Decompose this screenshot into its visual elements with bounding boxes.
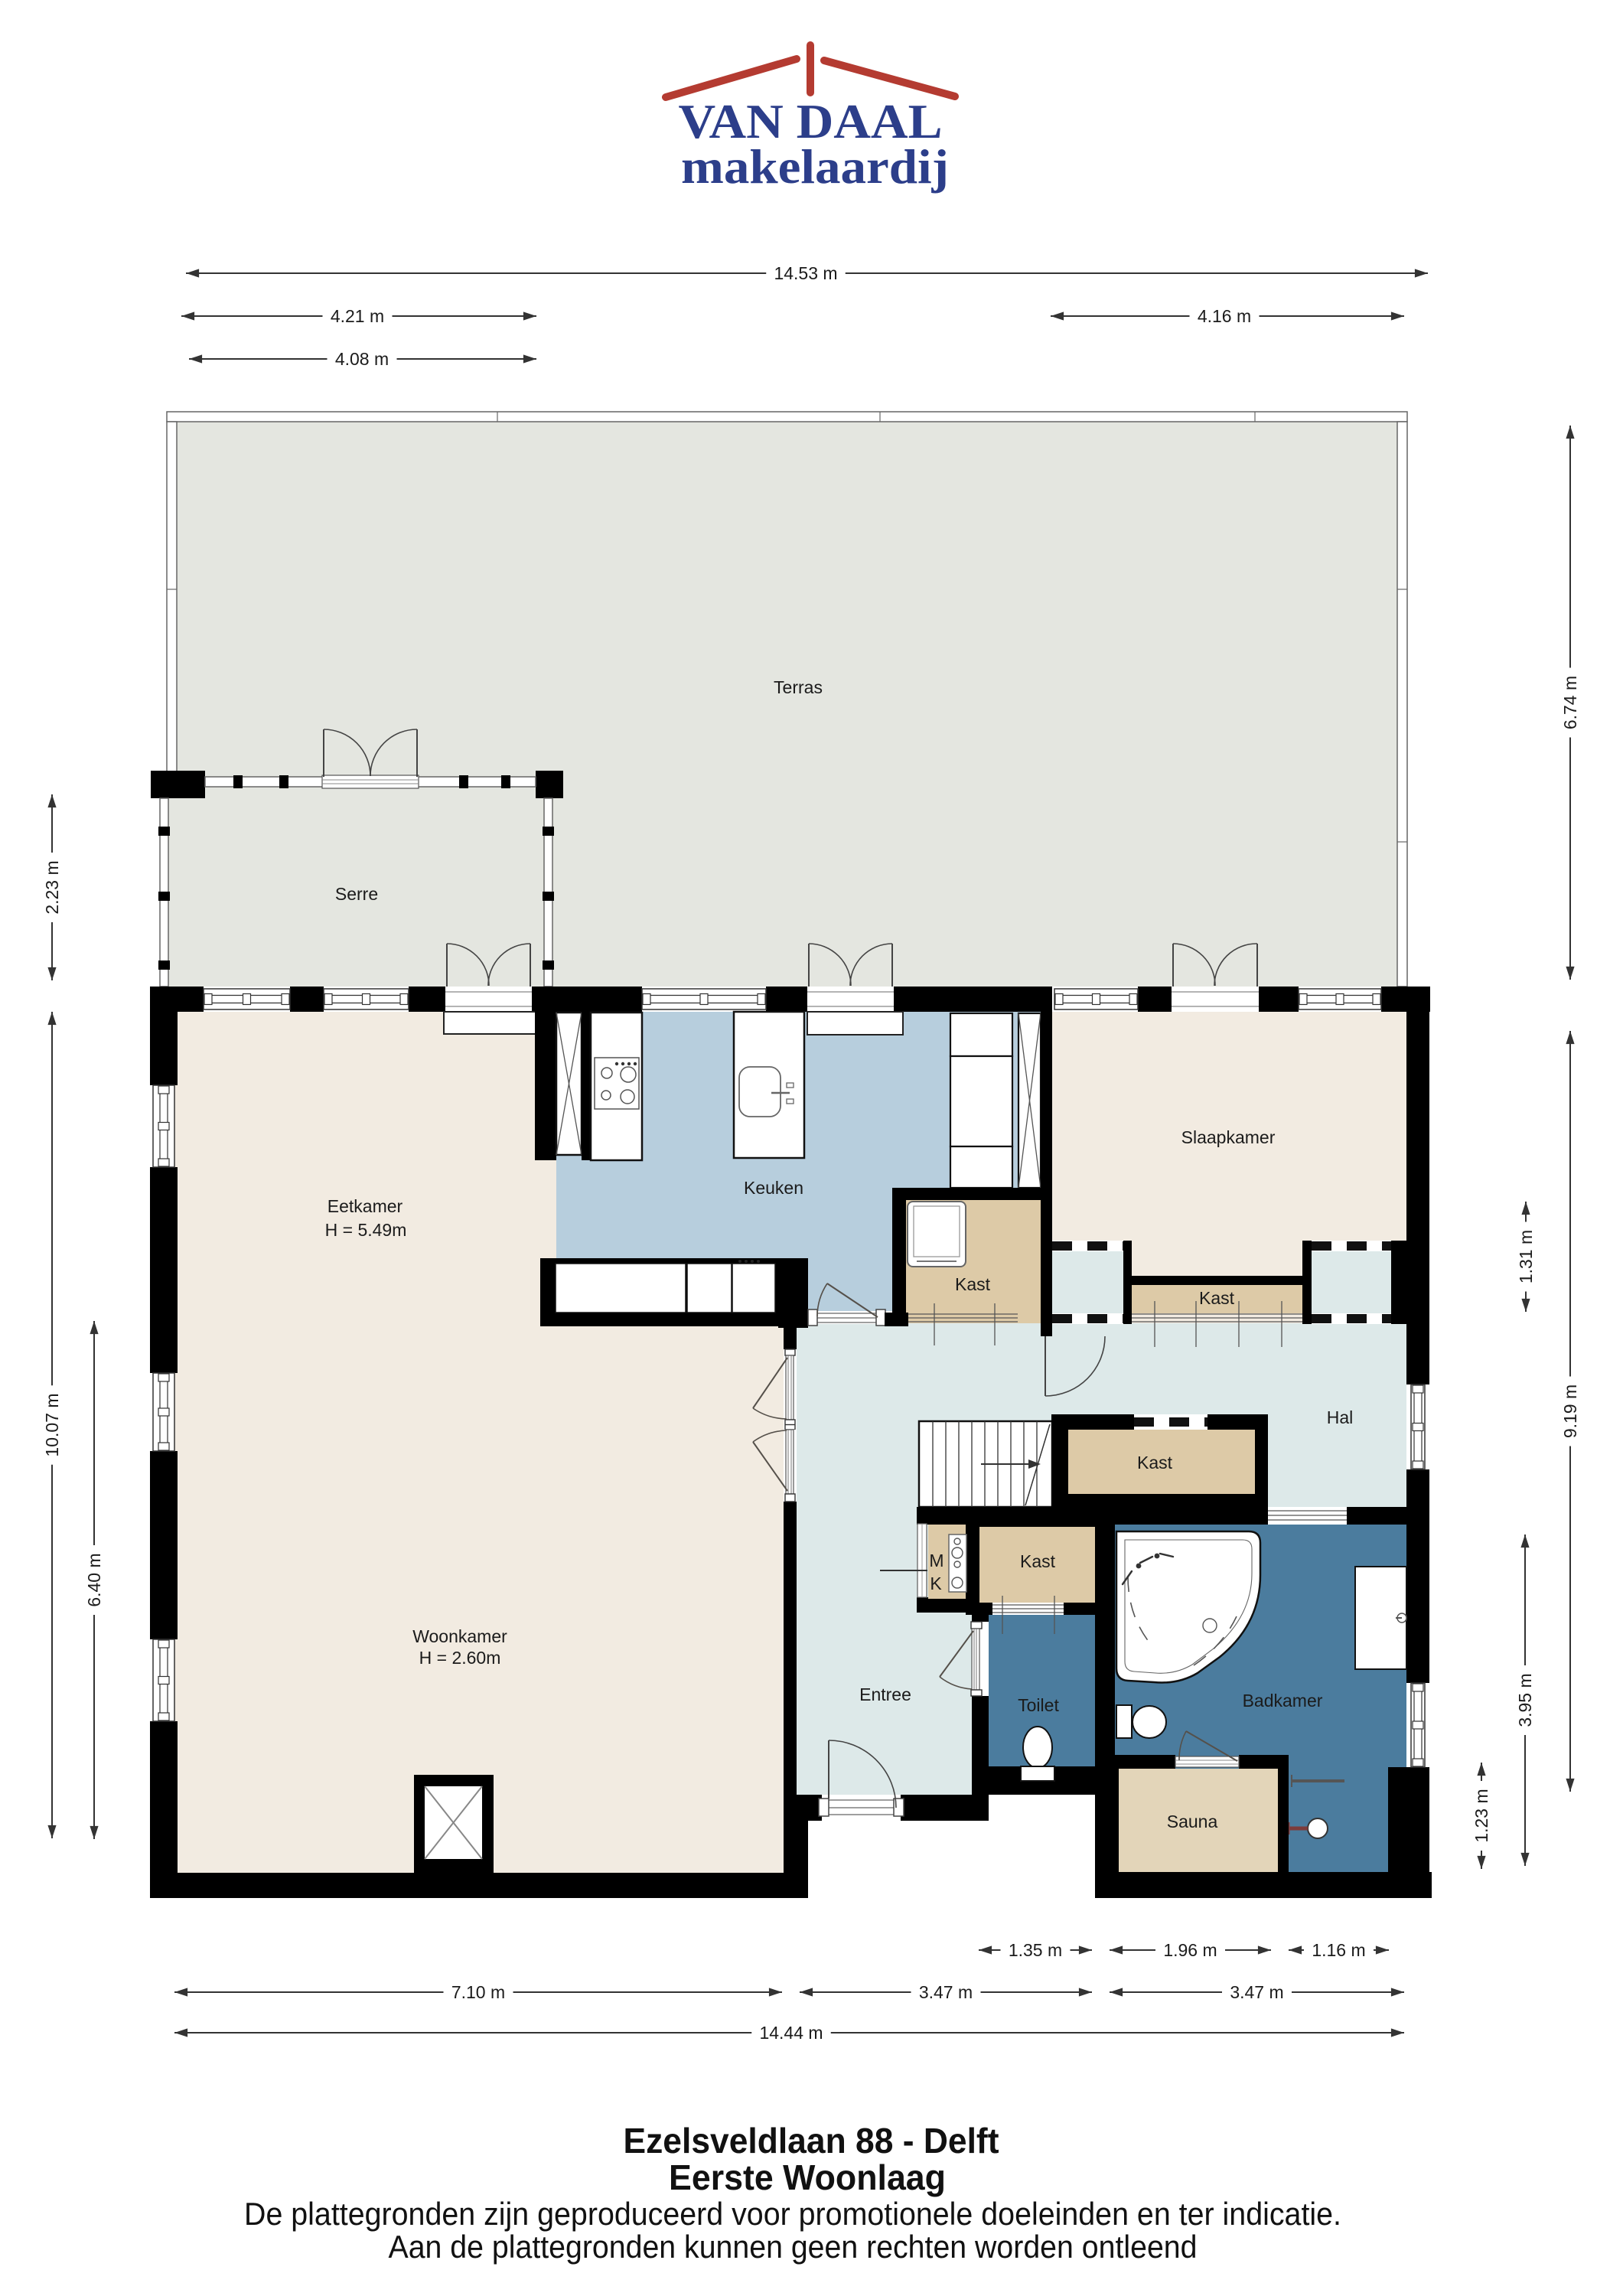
svg-text:1.35 m: 1.35 m: [1009, 1940, 1062, 1960]
svg-text:3.95 m: 3.95 m: [1515, 1673, 1535, 1727]
svg-text:Eerste Woonlaag: Eerste Woonlaag: [669, 2157, 946, 2197]
svg-text:Toilet: Toilet: [1018, 1695, 1059, 1715]
svg-text:De plattegronden zijn geproduc: De plattegronden zijn geproduceerd voor …: [244, 2196, 1341, 2232]
svg-text:4.16 m: 4.16 m: [1198, 306, 1251, 326]
svg-text:4.21 m: 4.21 m: [331, 306, 384, 326]
svg-text:6.40 m: 6.40 m: [84, 1553, 104, 1606]
svg-text:Keuken: Keuken: [744, 1178, 803, 1198]
svg-text:1.16 m: 1.16 m: [1312, 1940, 1365, 1960]
svg-text:Entree: Entree: [859, 1684, 911, 1704]
svg-text:Hal: Hal: [1327, 1407, 1354, 1427]
svg-text:H = 5.49m: H = 5.49m: [325, 1220, 407, 1240]
svg-text:3.47 m: 3.47 m: [1230, 1982, 1283, 2002]
svg-text:3.47 m: 3.47 m: [919, 1982, 973, 2002]
svg-text:Sauna: Sauna: [1167, 1812, 1218, 1831]
svg-text:Serre: Serre: [335, 884, 378, 904]
svg-text:2.23 m: 2.23 m: [42, 860, 62, 914]
svg-text:Terras: Terras: [774, 677, 823, 697]
svg-text:1.23 m: 1.23 m: [1471, 1789, 1491, 1842]
svg-text:Slaapkamer: Slaapkamer: [1181, 1127, 1276, 1147]
svg-text:1.31 m: 1.31 m: [1516, 1230, 1536, 1283]
svg-text:Eetkamer: Eetkamer: [328, 1196, 403, 1216]
svg-text:Ezelsveldlaan 88 - Delft: Ezelsveldlaan 88 - Delft: [624, 2121, 999, 2161]
svg-text:14.53 m: 14.53 m: [774, 263, 837, 283]
svg-text:K: K: [930, 1574, 942, 1593]
svg-text:7.10 m: 7.10 m: [451, 1982, 505, 2002]
svg-text:1.96 m: 1.96 m: [1163, 1940, 1217, 1960]
svg-text:9.19 m: 9.19 m: [1560, 1384, 1580, 1438]
svg-text:Aan de plattegronden kunnen ge: Aan de plattegronden kunnen geen rechten…: [389, 2229, 1198, 2265]
svg-text:10.07 m: 10.07 m: [42, 1393, 62, 1456]
svg-text:6.74 m: 6.74 m: [1560, 676, 1580, 729]
svg-text:Kast: Kast: [955, 1274, 991, 1294]
svg-text:H = 2.60m: H = 2.60m: [419, 1648, 501, 1668]
svg-text:Kast: Kast: [1020, 1551, 1056, 1571]
svg-text:Woonkamer: Woonkamer: [412, 1626, 507, 1646]
svg-text:makelaardij: makelaardij: [681, 139, 949, 194]
svg-text:14.44 m: 14.44 m: [759, 2023, 823, 2043]
svg-text:4.08 m: 4.08 m: [335, 349, 389, 369]
svg-text:M: M: [929, 1551, 943, 1570]
svg-text:Badkamer: Badkamer: [1243, 1691, 1323, 1711]
svg-text:Kast: Kast: [1199, 1288, 1235, 1308]
svg-text:Kast: Kast: [1137, 1453, 1173, 1473]
